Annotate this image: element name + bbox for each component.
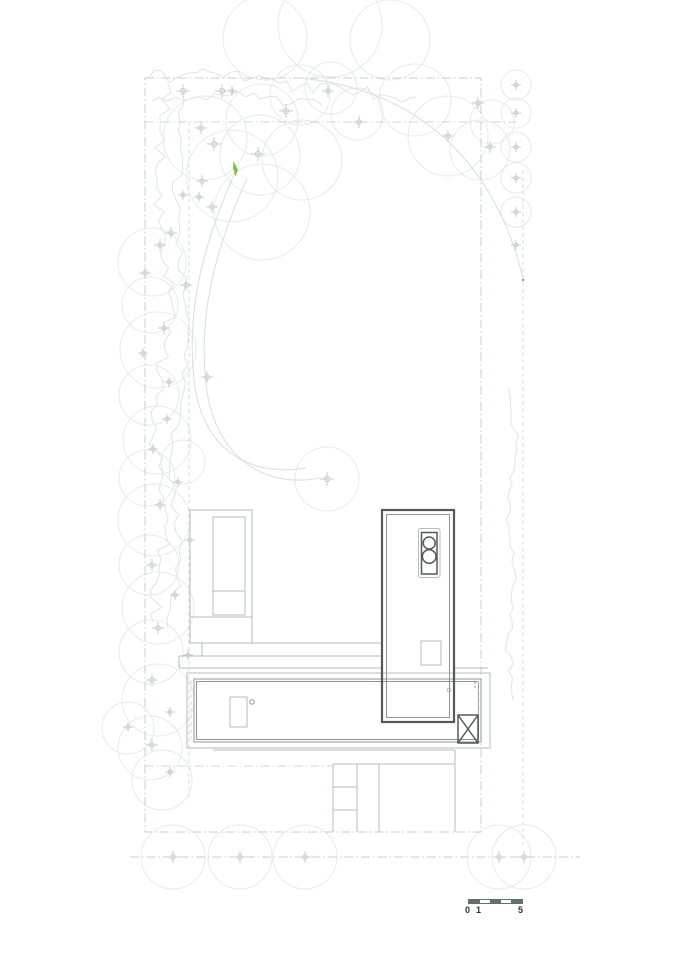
- tree-canopy: [226, 84, 298, 156]
- stair-path: [213, 750, 455, 832]
- roof-hatch: [421, 641, 441, 665]
- vegetation-outline: [148, 69, 416, 102]
- scale-bar-segment: [511, 900, 522, 903]
- tree-canopy: [350, 0, 430, 80]
- garden-path-curve: [192, 170, 306, 470]
- main-house-wall-inner: [197, 682, 479, 740]
- left-wing-lower-block: [190, 617, 252, 643]
- site-plan-svg: [0, 0, 680, 961]
- scale-label-zero: 0: [465, 905, 470, 915]
- tree-canopy: [132, 750, 192, 810]
- tree-canopy: [119, 620, 183, 684]
- left-wing-building: [179, 510, 488, 668]
- tree-canopy: [270, 65, 330, 125]
- skylight-drum: [423, 537, 435, 549]
- scale-label-one: 1: [476, 905, 481, 915]
- interior-dot: [474, 682, 476, 684]
- studio-tower: [382, 510, 454, 722]
- skylight-drum: [422, 550, 436, 564]
- garden-path-arcs: [192, 78, 524, 480]
- tree-canopy-layer: [102, 0, 556, 889]
- garden-path-curve: [204, 178, 320, 480]
- interior-dot: [474, 686, 476, 688]
- vegetation-outline: [149, 84, 175, 622]
- main-house-wall-outer: [194, 679, 481, 742]
- left-wing-inner-room: [213, 517, 245, 615]
- boundary-layer: [130, 78, 580, 857]
- site-plan: 0 1 5: [0, 0, 680, 961]
- property-boundary: [145, 78, 481, 832]
- tree-canopy: [262, 120, 342, 200]
- tree-canopy: [379, 64, 451, 136]
- tree-canopy: [305, 62, 357, 114]
- scale-bar-segment: [469, 900, 480, 903]
- interior-dot: [250, 700, 254, 704]
- tree-canopy: [186, 130, 278, 222]
- left-wing-outline: [190, 510, 252, 617]
- tree-canopy: [118, 228, 186, 296]
- tree-canopy: [120, 312, 196, 388]
- tree-canopy: [119, 450, 175, 506]
- tree-canopy: [223, 0, 307, 80]
- main-house: [187, 673, 490, 748]
- vegetation-outline: [505, 388, 518, 700]
- tree-center-layer: [123, 80, 530, 863]
- scale-bar: [468, 899, 523, 904]
- tree-canopy: [119, 365, 179, 425]
- tree-canopy: [122, 664, 194, 736]
- scale-bar-segment: [501, 900, 512, 903]
- scale-bar-segment: [490, 900, 501, 903]
- scale-label-five: 5: [518, 905, 523, 915]
- vegetation-layer: [148, 69, 519, 700]
- tree-canopy: [118, 484, 190, 556]
- main-house-roof-edge: [187, 673, 490, 748]
- interior-fixture: [230, 697, 247, 727]
- tree-canopy: [214, 164, 310, 260]
- scale-bar-segment: [480, 900, 491, 903]
- path-end-dot: [522, 279, 524, 281]
